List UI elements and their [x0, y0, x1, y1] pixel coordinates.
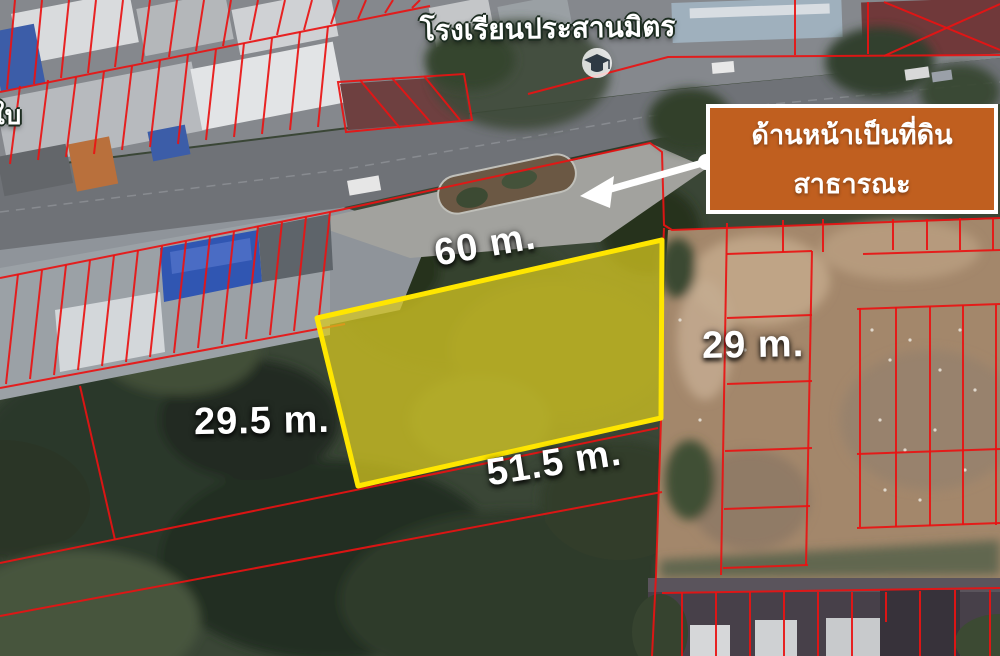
left-edge-partial-label: ใบ	[0, 100, 21, 131]
callout-box: ด้านหน้าเป็นที่ดิน สาธารณะ	[706, 104, 998, 214]
school-name-label: โรงเรียนประสานมิตร	[420, 10, 676, 48]
dimension-left-label: 29.5 m.	[194, 401, 331, 441]
graduation-cap-icon	[582, 48, 612, 78]
satellite-map: โรงเรียนประสานมิตร ใบ 60 m. 29 m. 29.5 m…	[0, 0, 1000, 656]
satellite-base-art	[0, 0, 1000, 656]
callout-line2: สาธารณะ	[793, 162, 910, 205]
dimension-right-label: 29 m.	[702, 325, 805, 365]
callout-line1: ด้านหน้าเป็นที่ดิน	[751, 113, 952, 156]
